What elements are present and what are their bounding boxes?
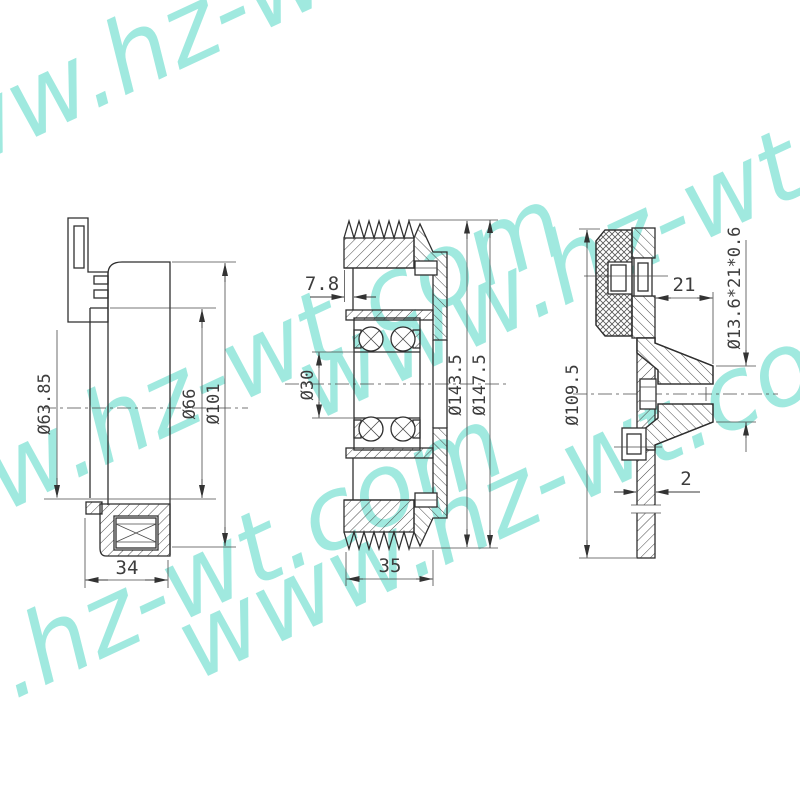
damper-spring [611, 265, 626, 291]
dim-plate-thickness: 2 [680, 468, 691, 490]
dim-pulley-root-diameter: Ø143.5 [446, 354, 466, 415]
damper-plate-bottom [632, 296, 655, 338]
dim-coil-inner-diameter: Ø63.85 [35, 373, 55, 434]
rim-bottom [344, 500, 414, 532]
dim-pulley-width: 35 [379, 555, 402, 577]
dim-hub-boss-spec: Ø13.6*21*0.6 [725, 227, 745, 350]
damper-plate-top [632, 228, 655, 258]
hub-spline [640, 379, 656, 409]
watermark: www.hz-wt.com www.hz-wt.com www.hz-wt.co… [0, 0, 800, 800]
connector-step [94, 276, 108, 284]
dim-hub-outer-diameter: Ø109.5 [563, 364, 583, 425]
rim-top [344, 238, 414, 268]
dim-pulley-outer-diameter: Ø147.5 [470, 354, 490, 415]
stop-block [622, 428, 646, 460]
engineering-drawing: www.hz-wt.com www.hz-wt.com www.hz-wt.co… [0, 0, 800, 800]
dim-coil-width: 34 [116, 557, 139, 579]
dim-hub-length: 21 [673, 274, 696, 296]
connector-step [94, 290, 108, 298]
dim-pulley-bore: Ø30 [298, 370, 318, 401]
connector-slot [74, 226, 84, 268]
break-gap [633, 505, 661, 513]
dim-coil-outer-diameter: Ø101 [204, 384, 224, 425]
dim-pulley-pilot: 7.8 [305, 273, 339, 295]
rivet [634, 258, 652, 296]
dim-coil-bore-diameter: Ø66 [180, 389, 200, 420]
